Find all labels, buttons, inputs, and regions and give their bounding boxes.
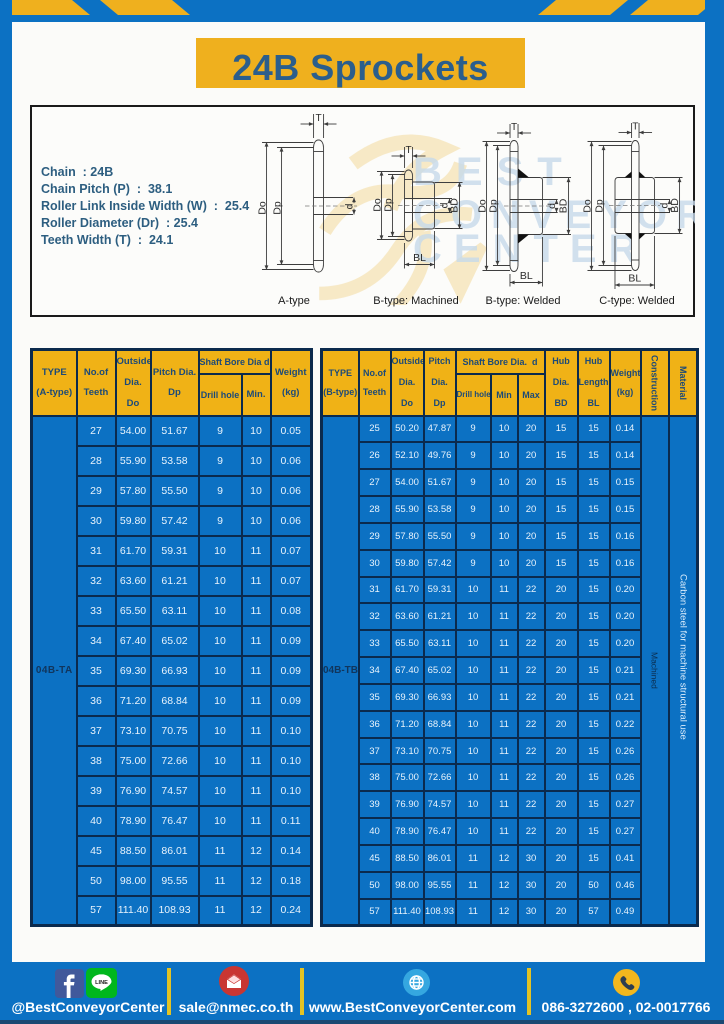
- svg-text:T: T: [632, 121, 638, 132]
- svg-text:T: T: [405, 145, 411, 156]
- svg-text:d: d: [546, 203, 558, 209]
- svg-text:T: T: [315, 113, 321, 124]
- svg-text:BL: BL: [628, 272, 641, 284]
- svg-text:Dp: Dp: [594, 199, 606, 213]
- svg-text:BD: BD: [558, 198, 570, 213]
- svg-text:Do: Do: [583, 199, 594, 213]
- svg-text:Dp: Dp: [383, 198, 395, 212]
- svg-text:d: d: [344, 203, 356, 209]
- svg-text:Do: Do: [257, 201, 269, 215]
- svg-text:Dp: Dp: [272, 201, 284, 215]
- svg-text:T: T: [511, 122, 517, 133]
- svg-text:BL: BL: [520, 270, 533, 282]
- svg-text:LINE: LINE: [95, 980, 108, 986]
- svg-text:BD: BD: [449, 198, 461, 213]
- svg-text:BL: BL: [413, 252, 426, 264]
- svg-text:Dp: Dp: [488, 199, 500, 213]
- svg-text:BD: BD: [669, 198, 681, 213]
